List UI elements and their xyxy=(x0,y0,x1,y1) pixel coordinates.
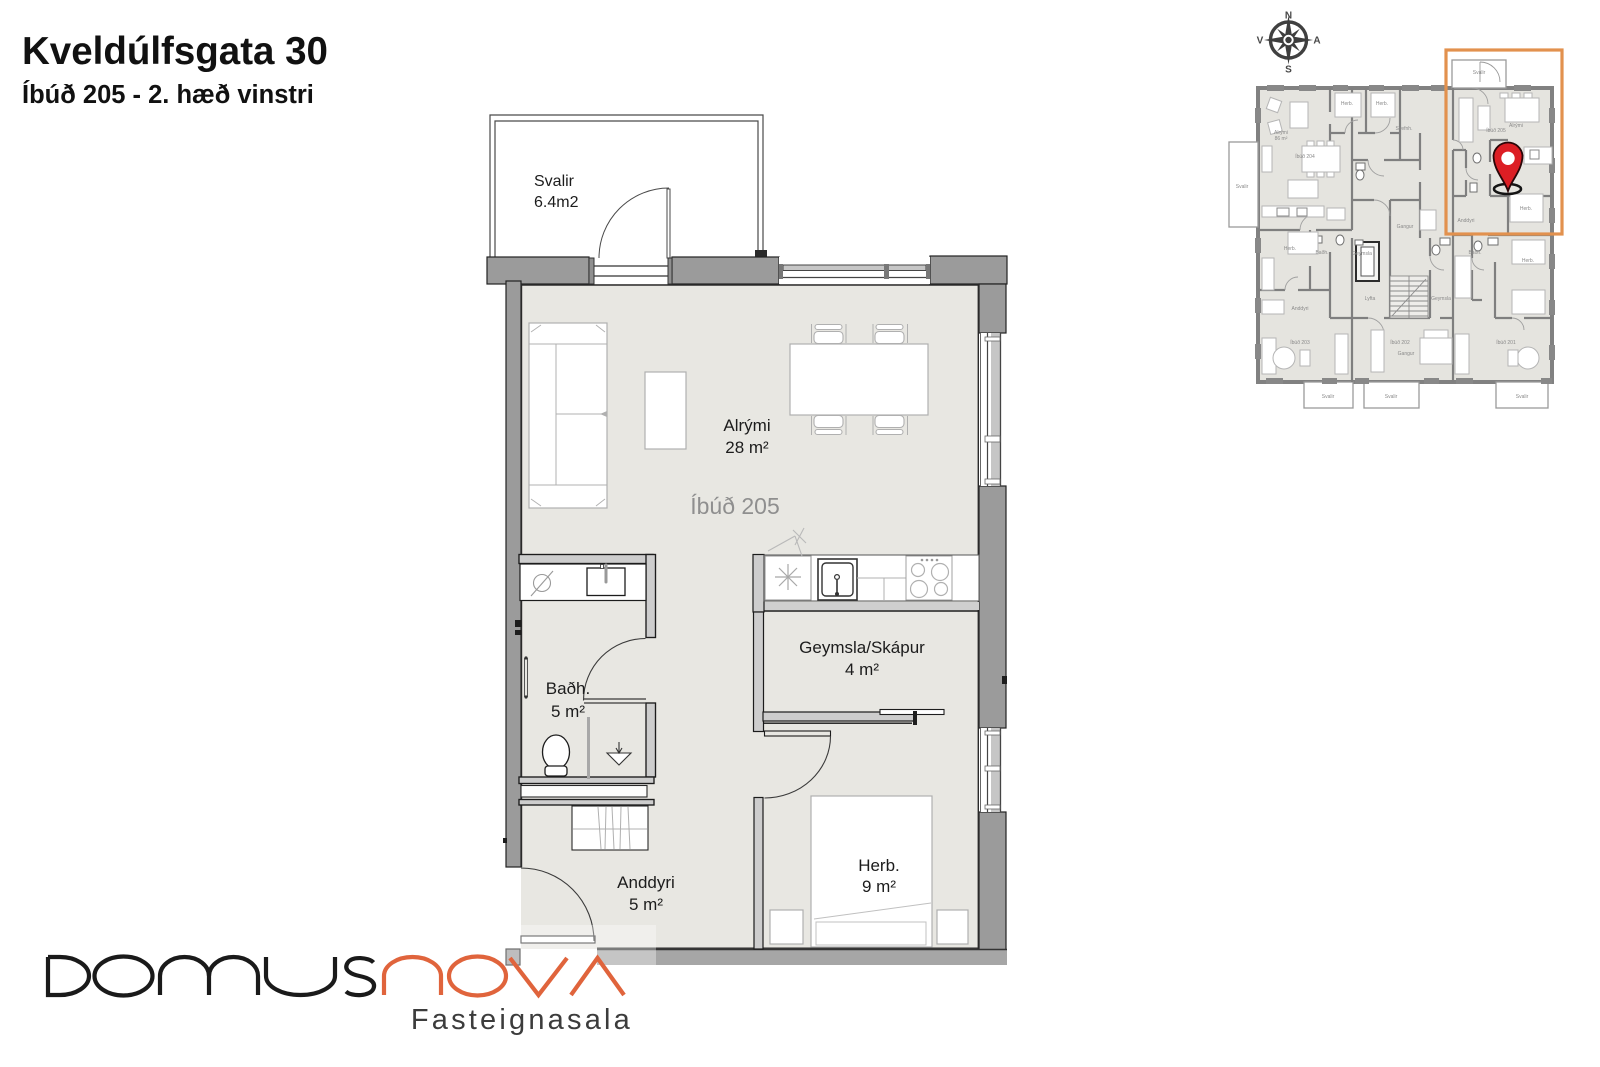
svg-text:Geymsla: Geymsla xyxy=(1352,251,1372,257)
svg-text:Herb.: Herb. xyxy=(858,856,900,875)
svg-text:Svalir: Svalir xyxy=(1322,394,1335,400)
svg-text:Íbúð 203: Íbúð 203 xyxy=(1290,339,1310,346)
svg-text:Geymsla/Skápur: Geymsla/Skápur xyxy=(799,638,925,657)
svg-text:Herb.: Herb. xyxy=(1341,101,1353,107)
svg-text:V: V xyxy=(1257,36,1264,47)
svg-text:Herb.: Herb. xyxy=(1284,246,1296,252)
svg-text:6.4m2: 6.4m2 xyxy=(534,194,579,211)
svg-text:Íbúð 205: Íbúð 205 xyxy=(1486,127,1506,134)
svg-text:Herb.: Herb. xyxy=(1520,206,1532,212)
svg-text:Geymsla: Geymsla xyxy=(1431,296,1451,302)
svg-text:Svalir: Svalir xyxy=(1473,70,1486,76)
svg-text:Íbúð 205: Íbúð 205 xyxy=(690,493,780,519)
svg-text:Íbúð 201: Íbúð 201 xyxy=(1496,339,1516,346)
svg-text:Svalir: Svalir xyxy=(1236,184,1249,190)
svg-text:Svalir: Svalir xyxy=(1385,394,1398,400)
svg-text:Alrými: Alrými xyxy=(723,416,770,435)
svg-text:S: S xyxy=(1285,65,1292,76)
svg-text:Anddyri: Anddyri xyxy=(1292,306,1309,312)
svg-text:Íbúð 204: Íbúð 204 xyxy=(1295,153,1315,160)
svg-text:Svalir: Svalir xyxy=(534,173,575,190)
svg-text:Fasteignasala: Fasteignasala xyxy=(411,1004,633,1036)
svg-text:Anddyri: Anddyri xyxy=(1458,218,1475,224)
svg-text:Alrými: Alrými xyxy=(1509,123,1523,129)
svg-text:Gangur: Gangur xyxy=(1397,224,1414,230)
svg-text:Íbúð 202: Íbúð 202 xyxy=(1390,339,1410,346)
svg-text:Baðh.: Baðh. xyxy=(546,679,590,698)
svg-text:Svefnh.: Svefnh. xyxy=(1396,126,1413,132)
svg-text:5 m²: 5 m² xyxy=(551,702,585,721)
svg-text:86 m²: 86 m² xyxy=(1275,136,1288,142)
svg-text:9 m²: 9 m² xyxy=(862,877,896,896)
svg-text:Baðh.: Baðh. xyxy=(1468,249,1481,256)
svg-text:4 m²: 4 m² xyxy=(845,660,879,679)
svg-text:A: A xyxy=(1313,36,1320,47)
svg-text:Anddyri: Anddyri xyxy=(617,873,675,892)
svg-text:N: N xyxy=(1285,11,1292,22)
svg-text:28 m²: 28 m² xyxy=(725,438,769,457)
svg-text:Herb.: Herb. xyxy=(1376,101,1388,107)
svg-text:Íbúð 205 - 2. hæð vinstri: Íbúð 205 - 2. hæð vinstri xyxy=(22,80,314,109)
svg-text:Baðh.: Baðh. xyxy=(1315,249,1328,256)
svg-text:Gangur: Gangur xyxy=(1398,351,1415,357)
svg-text:5 m²: 5 m² xyxy=(629,895,663,914)
svg-text:Herb.: Herb. xyxy=(1522,258,1534,264)
svg-text:Kveldúlfsgata 30: Kveldúlfsgata 30 xyxy=(22,30,328,73)
svg-text:Svalir: Svalir xyxy=(1516,394,1529,400)
svg-text:Lyfta: Lyfta xyxy=(1365,296,1376,302)
